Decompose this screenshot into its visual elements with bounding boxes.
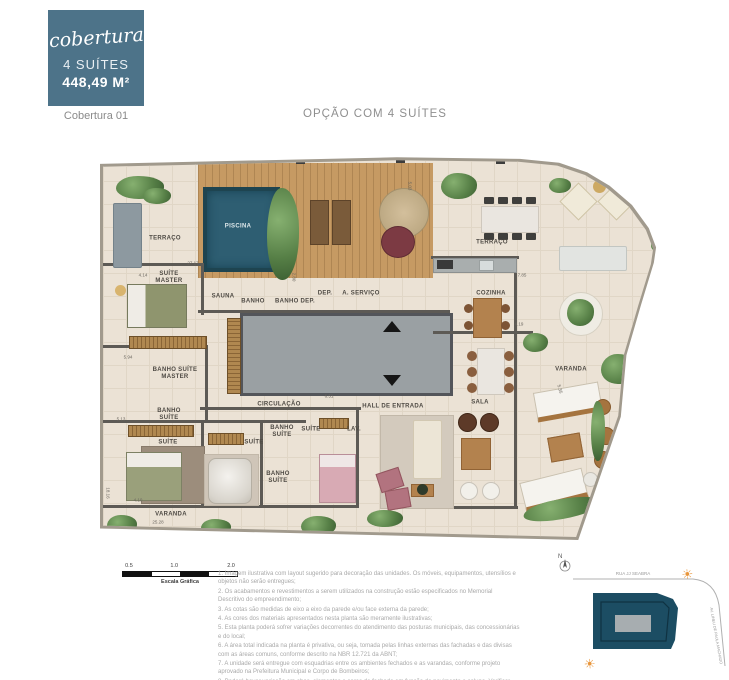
sun-lounger <box>332 200 351 245</box>
wall <box>198 310 450 313</box>
note-item: 7. A unidade será entregue com esquadria… <box>218 660 520 677</box>
note-item: 1. Imagem ilustrativa com layout sugerid… <box>218 570 520 587</box>
hall-sofa <box>413 420 442 479</box>
north-arrow: N <box>558 554 570 571</box>
sun-icon: ☀ <box>581 654 600 673</box>
kitchen-table <box>473 298 502 338</box>
dim: 6.51 <box>325 394 334 399</box>
plant <box>631 328 657 368</box>
bed <box>319 454 356 503</box>
plant-pot <box>417 484 428 495</box>
unit-badge: cobertura 4 SUÍTES 448,49 M² <box>48 10 144 106</box>
room-label-varanda-right: VARANDA <box>555 367 587 374</box>
room-label-banho-suite-1: BANHO SUÍTE <box>153 408 185 422</box>
building-core <box>615 615 651 632</box>
room-label-suite-3: SUÍTE <box>301 427 320 434</box>
scale-tick-label: 0.5 <box>125 563 133 569</box>
chair <box>501 304 510 313</box>
chair <box>504 367 514 377</box>
room-label-banho-suite-3: BANHO SUÍTE <box>262 471 294 485</box>
room-label-terraco-right: TERRAÇO <box>476 240 508 247</box>
wall <box>205 345 208 423</box>
chair <box>467 351 477 361</box>
room-label-suite-2: SUÍTE <box>244 440 263 447</box>
note-item: 5. Esta planta poderá sofrer variações d… <box>218 624 520 641</box>
wall <box>103 420 306 423</box>
dim: 5.94 <box>124 355 133 360</box>
room-label-circulacao: CIRCULAÇÃO <box>257 402 300 409</box>
room-label-cozinha: COZINHA <box>476 291 505 298</box>
chair <box>512 197 522 204</box>
room-label-sala: SALA <box>471 400 489 407</box>
closet <box>319 418 349 429</box>
plant <box>549 178 571 193</box>
room-label-sauna: SAUNA <box>212 294 235 301</box>
chair <box>498 197 508 204</box>
note-item: 6. A área total indicada na planta é pri… <box>218 642 520 659</box>
stairs-up-arrow <box>383 321 401 332</box>
bed <box>126 452 182 501</box>
plan-floor: TERRAÇO PISCINA SUÍTE MASTER SAUNA BANHO… <box>103 158 657 537</box>
closet <box>227 318 241 394</box>
chair <box>526 197 536 204</box>
bed <box>127 284 187 328</box>
armchair <box>460 482 478 500</box>
armchair <box>480 413 499 432</box>
unit-label: Cobertura 01 <box>48 110 144 122</box>
badge-script-text: cobertura <box>48 23 144 52</box>
bed <box>208 458 252 504</box>
room-label-varanda-left: VARANDA <box>155 512 187 519</box>
street-label-top: RUA JJ SEABRA <box>616 571 651 576</box>
wall <box>446 506 518 509</box>
closet <box>128 425 194 437</box>
closet <box>129 336 207 349</box>
plant <box>367 510 403 527</box>
sala-dining-table <box>477 348 505 395</box>
room-label-suite-master: SUÍTE MASTER <box>148 271 190 285</box>
dim: 4.14 <box>139 273 148 278</box>
pouf <box>384 487 411 511</box>
plant <box>601 354 637 384</box>
dim: 4.19 <box>515 322 524 327</box>
room-label-hall: HALL DE ENTRADA <box>362 404 423 411</box>
side-table <box>115 285 126 296</box>
room-label-banho-suite-master: BANHO SUÍTE MASTER <box>150 367 200 381</box>
chair <box>467 383 477 393</box>
room-label-banho: BANHO <box>241 299 265 306</box>
dining-table <box>481 206 539 233</box>
dim: 2.80 <box>292 273 297 282</box>
badge-suites: 4 SUÍTES <box>63 57 129 72</box>
armchair <box>458 413 477 432</box>
chair <box>504 351 514 361</box>
chair <box>504 383 514 393</box>
plant <box>591 401 605 461</box>
lounge-set <box>381 226 415 258</box>
plant <box>567 299 594 326</box>
chair <box>526 233 536 240</box>
brochure-page: cobertura 4 SUÍTES 448,49 M² Cobertura 0… <box>0 0 729 680</box>
sun-icon: ☀ <box>678 565 697 584</box>
key-plan: N RUA JJ SEABRA AV. LINEU DE PAULA MACHA… <box>545 548 729 680</box>
note-item: 2. Os acabamentos e revestimentos a sere… <box>218 588 520 605</box>
dim: 4.10 <box>134 498 143 503</box>
room-label-suite-1: SUÍTE <box>158 440 177 447</box>
dim-left: 18.16 <box>106 487 111 498</box>
sofa <box>113 203 142 268</box>
page-title: OPÇÃO COM 4 SUÍTES <box>260 108 490 120</box>
scale-tick-label: 2.0 <box>227 563 235 569</box>
sofa <box>559 246 627 271</box>
plant <box>107 515 137 535</box>
sink <box>479 260 494 271</box>
dim: 5.13 <box>117 417 126 422</box>
coffee-table <box>461 438 491 470</box>
dim-bottom: 25.28 <box>152 520 163 525</box>
armchair <box>482 482 500 500</box>
room-label-banho-suite-2: BANHO SUÍTE <box>266 425 298 439</box>
wall <box>260 423 263 506</box>
wall <box>514 263 517 508</box>
room-label-a-servico: A. SERVIÇO <box>342 291 380 298</box>
plant <box>143 188 171 204</box>
room-label-piscina: PISCINA <box>225 224 251 231</box>
stairs-down-arrow <box>383 375 401 386</box>
plant <box>267 188 299 280</box>
chair <box>464 321 473 330</box>
dim: 5.35 <box>556 384 563 394</box>
closet <box>208 433 244 445</box>
outdoor-table <box>547 432 584 462</box>
dim: 5.03 <box>408 182 413 191</box>
chair <box>467 367 477 377</box>
plant <box>523 333 548 352</box>
scale-tick-label: 1.0 <box>170 563 178 569</box>
badge-area: 448,49 M² <box>62 74 130 90</box>
dim: 7.85 <box>518 273 527 278</box>
note-item: 4. As cores dos materiais apresentados n… <box>218 615 520 623</box>
plant <box>201 519 231 536</box>
chair <box>501 321 510 330</box>
street-label-right: AV. LINEU DE PAULA MACHADO <box>709 607 723 664</box>
chair <box>484 197 494 204</box>
dim-top: 27.17 <box>187 261 198 266</box>
common-core <box>240 313 453 396</box>
sun-lounger <box>310 200 329 245</box>
wall <box>201 263 204 315</box>
room-label-banho-dep: BANHO DEP. <box>275 299 315 306</box>
floor-plan: TERRAÇO PISCINA SUÍTE MASTER SAUNA BANHO… <box>100 155 660 540</box>
stove <box>437 260 453 269</box>
room-label-dep: DEP. <box>318 291 332 298</box>
room-label-lav: LAV. <box>347 427 361 434</box>
wall <box>356 408 359 508</box>
room-label-terraco-left: TERRAÇO <box>149 236 181 243</box>
north-label: N <box>558 554 562 560</box>
chair <box>512 233 522 240</box>
note-item: 3. As cotas são medidas de eixo a eixo d… <box>218 606 520 614</box>
plant <box>441 173 477 199</box>
legal-notes: 1. Imagem ilustrativa com layout sugerid… <box>218 570 520 680</box>
chair <box>464 304 473 313</box>
